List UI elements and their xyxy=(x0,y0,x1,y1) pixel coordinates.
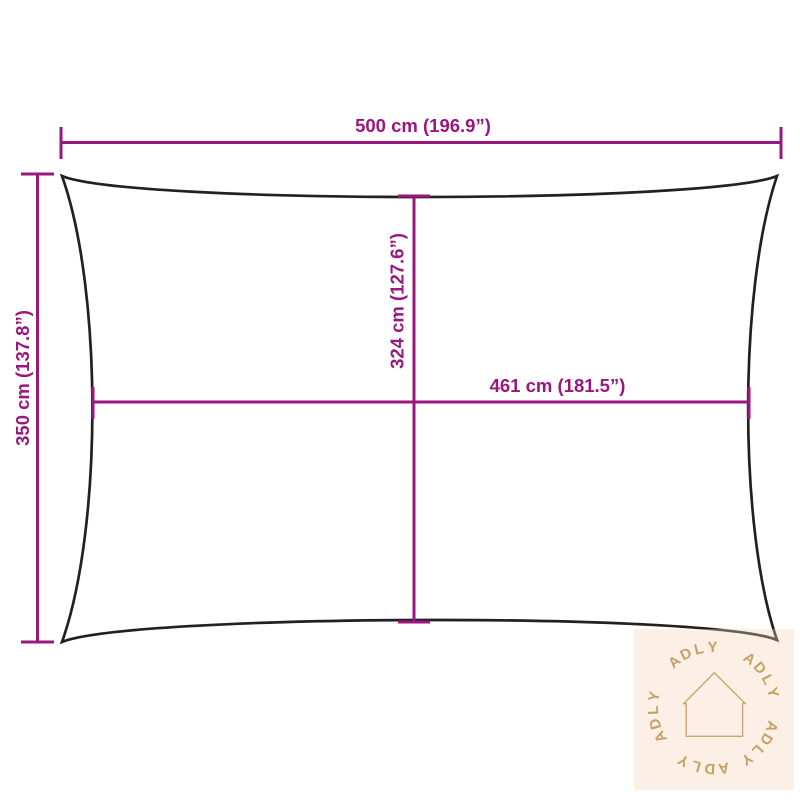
svg-text:350 cm (137.8”): 350 cm (137.8”) xyxy=(12,310,33,446)
svg-text:L: L xyxy=(646,705,662,715)
svg-text:500 cm (196.9”): 500 cm (196.9”) xyxy=(355,115,491,136)
svg-text:D: D xyxy=(704,760,716,777)
svg-text:Y: Y xyxy=(707,640,717,656)
svg-text:324 cm (127.6”): 324 cm (127.6”) xyxy=(387,233,408,369)
svg-text:461 cm (181.5”): 461 cm (181.5”) xyxy=(490,375,626,396)
